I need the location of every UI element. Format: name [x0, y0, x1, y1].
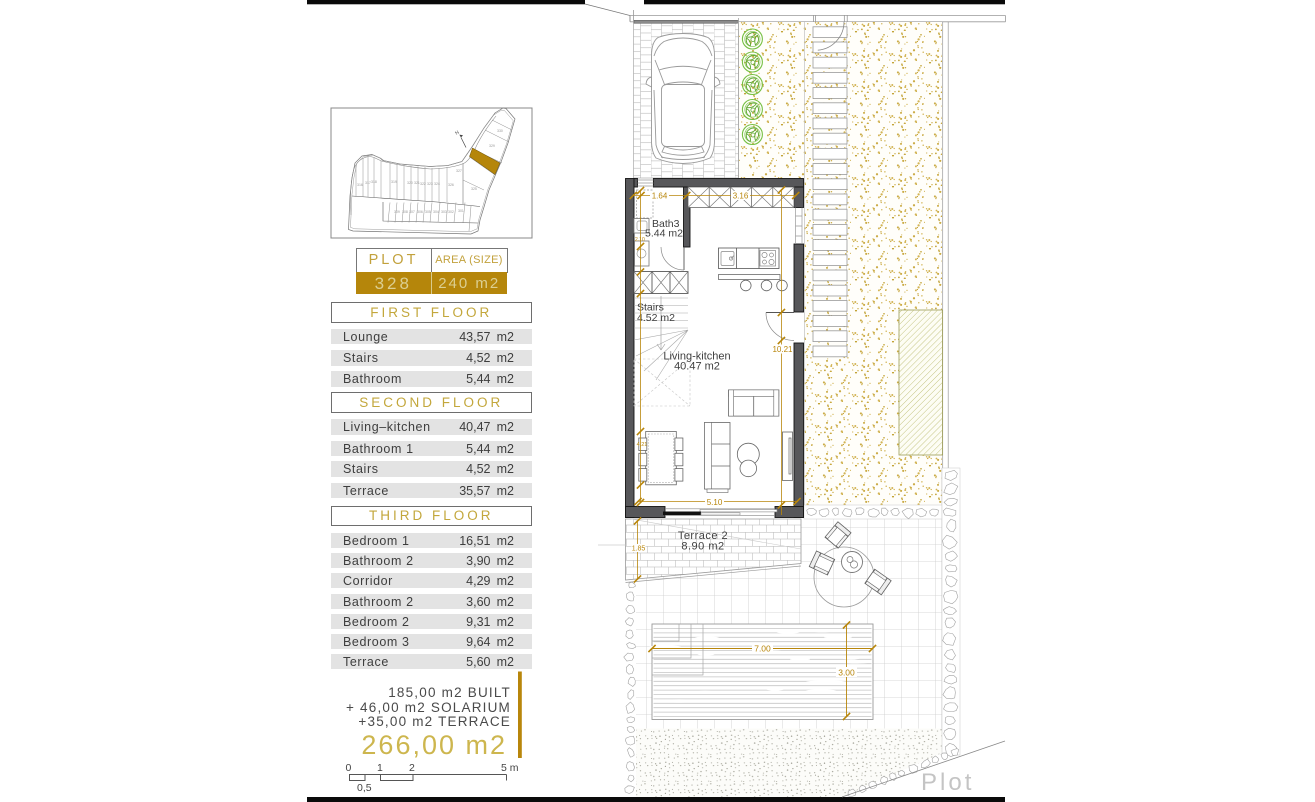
svg-text:7.00: 7.00 [754, 644, 771, 654]
svg-text:Plot: Plot [921, 769, 974, 796]
svg-text:321: 321 [414, 181, 420, 185]
svg-text:8.90 m2: 8.90 m2 [681, 541, 724, 553]
svg-text:316: 316 [357, 183, 363, 187]
svg-text:5.44 m2: 5.44 m2 [645, 228, 683, 240]
svg-text:305: 305 [425, 210, 431, 214]
svg-text:1: 1 [377, 762, 383, 774]
svg-text:5 m: 5 m [501, 762, 519, 774]
svg-text:1.64: 1.64 [652, 192, 668, 201]
svg-text:0: 0 [346, 762, 352, 774]
svg-text:5.10: 5.10 [707, 498, 723, 507]
svg-text:3.16: 3.16 [733, 192, 749, 201]
svg-text:3.00: 3.00 [838, 668, 855, 678]
svg-text:4.52 m2: 4.52 m2 [637, 312, 675, 324]
svg-text:40.47 m2: 40.47 m2 [674, 361, 720, 373]
svg-text:325: 325 [471, 187, 477, 191]
svg-text:320: 320 [407, 181, 413, 185]
svg-text:2.10: 2.10 [635, 237, 645, 243]
svg-text:317: 317 [365, 181, 371, 185]
svg-text:306: 306 [417, 210, 423, 214]
svg-text:308: 308 [402, 210, 408, 214]
svg-text:304: 304 [433, 210, 439, 214]
svg-text:10.21: 10.21 [772, 345, 793, 354]
svg-text:307: 307 [409, 210, 415, 214]
svg-text:303: 303 [441, 210, 447, 214]
svg-text:319: 319 [391, 180, 397, 184]
svg-text:301: 301 [458, 209, 464, 213]
svg-text:330: 330 [497, 129, 503, 133]
svg-text:4,21: 4,21 [637, 442, 648, 448]
svg-text:323: 323 [427, 182, 433, 186]
svg-text:309: 309 [394, 210, 400, 214]
svg-text:324: 324 [434, 182, 440, 186]
svg-text:302: 302 [448, 210, 454, 214]
svg-text:0,5: 0,5 [357, 782, 372, 794]
svg-text:318: 318 [371, 180, 377, 184]
svg-text:327: 327 [456, 169, 462, 173]
svg-text:326: 326 [448, 183, 454, 187]
svg-text:2: 2 [409, 762, 415, 774]
svg-text:322: 322 [420, 182, 426, 186]
svg-text:1.85: 1.85 [632, 546, 646, 553]
svg-text:329: 329 [489, 144, 495, 148]
